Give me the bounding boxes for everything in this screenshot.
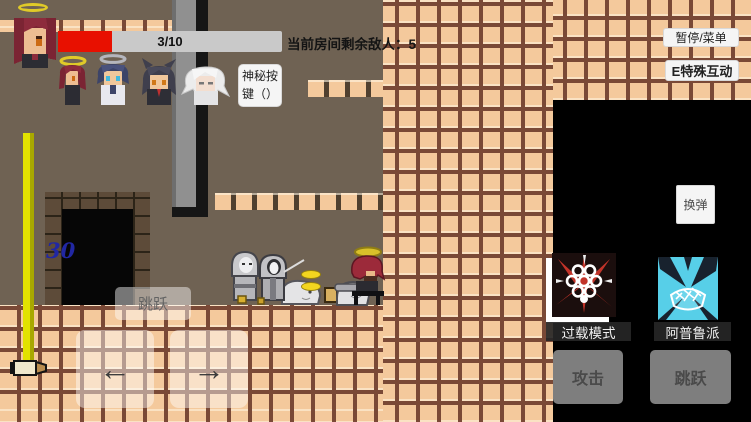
player-character: [344, 245, 388, 307]
coin-drop-icon: [301, 270, 321, 279]
black-hair-wolf-ears-portrait: [138, 57, 180, 105]
jump-button[interactable]: 跳跃: [650, 350, 731, 404]
skill-apple-pie-button[interactable]: [658, 257, 718, 320]
attack-button[interactable]: 攻击: [553, 350, 623, 404]
blue-hair-gray-halo-portrait: [93, 54, 133, 105]
overload-cluster-icon: [552, 253, 616, 317]
tile-platform-mid: [215, 193, 383, 210]
game-viewport: 30: [0, 0, 751, 422]
pause-menu-button[interactable]: 暂停/菜单: [663, 28, 739, 47]
bullet-pickup-icon: [8, 358, 50, 378]
mystery-key-button[interactable]: 神秘按 键（）: [238, 64, 282, 107]
enemies-remaining-label: 当前房间剩余敌人：5: [287, 33, 416, 53]
special-interact-button[interactable]: E特殊互动: [665, 60, 739, 81]
apple-pie-icon: [658, 257, 718, 320]
mystery-key-line1: 神秘按: [242, 68, 278, 85]
move-right-button[interactable]: →: [170, 330, 248, 408]
door-number-label: 30: [46, 238, 90, 263]
leader-halo-icon: [18, 3, 48, 12]
yellow-pole: [23, 133, 34, 362]
skill-overload-label: 过载模式: [546, 322, 631, 341]
white-hair-portrait: [180, 60, 230, 105]
health-bar-label: 3/10: [58, 31, 282, 52]
move-left-button[interactable]: ←: [76, 330, 154, 408]
skill-overload-button[interactable]: [546, 253, 616, 323]
right-arrow-icon: →: [193, 351, 225, 388]
skill-apple-pie-label: 阿普鲁派: [654, 322, 731, 341]
coin-drop-icon: [301, 282, 321, 291]
red-hair-halo-portrait: [8, 12, 62, 68]
health-bar: 3/10: [58, 31, 282, 52]
red-hair-halo-mini-portrait: [55, 56, 90, 105]
tile-platform-upper: [308, 80, 383, 97]
left-arrow-icon: ←: [99, 351, 131, 388]
tiled-wall-top-right: [553, 0, 751, 100]
reload-button[interactable]: 换弹: [676, 185, 715, 224]
mystery-key-line2: 键（）: [242, 86, 278, 103]
jump-touch-button[interactable]: 跳跃: [115, 287, 191, 320]
tiled-wall-right: [383, 0, 553, 422]
